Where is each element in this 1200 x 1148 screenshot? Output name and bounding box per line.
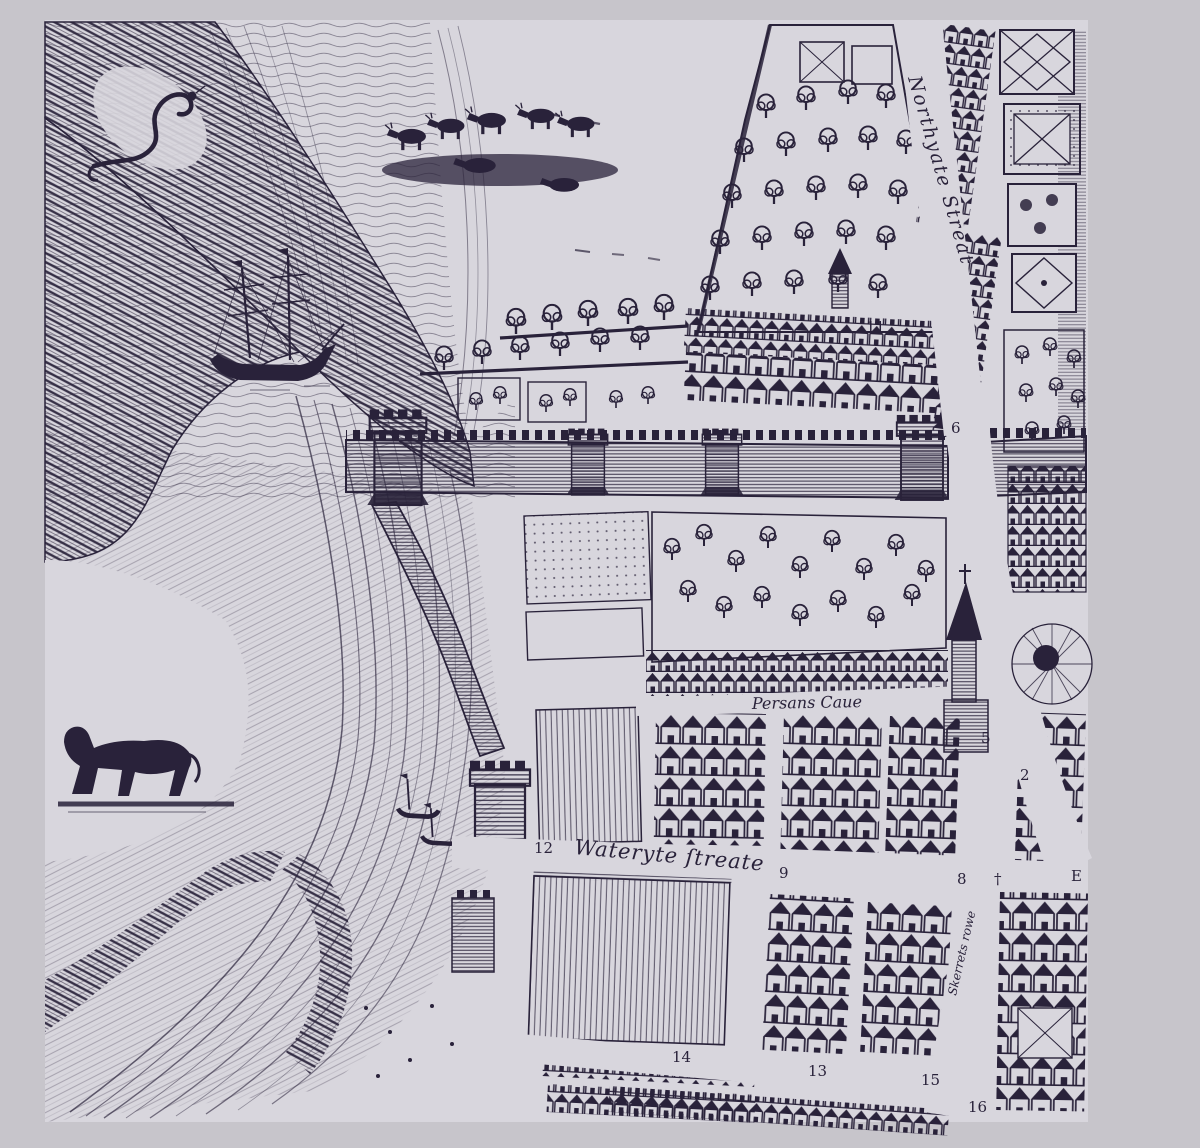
map-number-8: 8 bbox=[957, 870, 967, 888]
radial-yard bbox=[1012, 624, 1092, 704]
map-number-13: 13 bbox=[808, 1062, 827, 1080]
map-number-14: 14 bbox=[672, 1048, 691, 1066]
label-persans-caue: Persans Caue bbox=[751, 692, 862, 713]
map-letter-e: E bbox=[1071, 867, 1082, 885]
wall-tower-2 bbox=[701, 429, 744, 495]
map-number-2: 2 bbox=[1020, 766, 1030, 784]
wall-tower-1 bbox=[567, 429, 610, 495]
map-number-12: 12 bbox=[534, 839, 553, 857]
corner-garden bbox=[1018, 1008, 1072, 1058]
house-block bbox=[654, 712, 766, 846]
engraved-map: Northyate Streat Persans Caue Wateryte ſ… bbox=[0, 0, 1200, 1148]
map-number-16: 16 bbox=[968, 1098, 987, 1116]
striped-garden-large bbox=[528, 876, 730, 1045]
map-number-5: 5 bbox=[981, 729, 991, 747]
house-block bbox=[1008, 466, 1086, 592]
house-block bbox=[780, 714, 882, 855]
house-block bbox=[762, 894, 854, 1054]
garden-plot-dotted bbox=[524, 512, 651, 604]
corner-tower bbox=[367, 409, 428, 505]
striped-garden bbox=[536, 707, 641, 844]
dagger-marker: † bbox=[994, 870, 1002, 888]
map-number-11: 11 bbox=[866, 318, 885, 336]
photographed-map: Northyate Streat Persans Caue Wateryte ſ… bbox=[0, 0, 1200, 1148]
watergate-shed bbox=[452, 890, 494, 972]
map-number-15: 15 bbox=[921, 1071, 940, 1089]
map-number-6: 6 bbox=[951, 419, 961, 437]
house-block bbox=[996, 892, 1088, 1112]
map-number-9: 9 bbox=[779, 864, 789, 882]
